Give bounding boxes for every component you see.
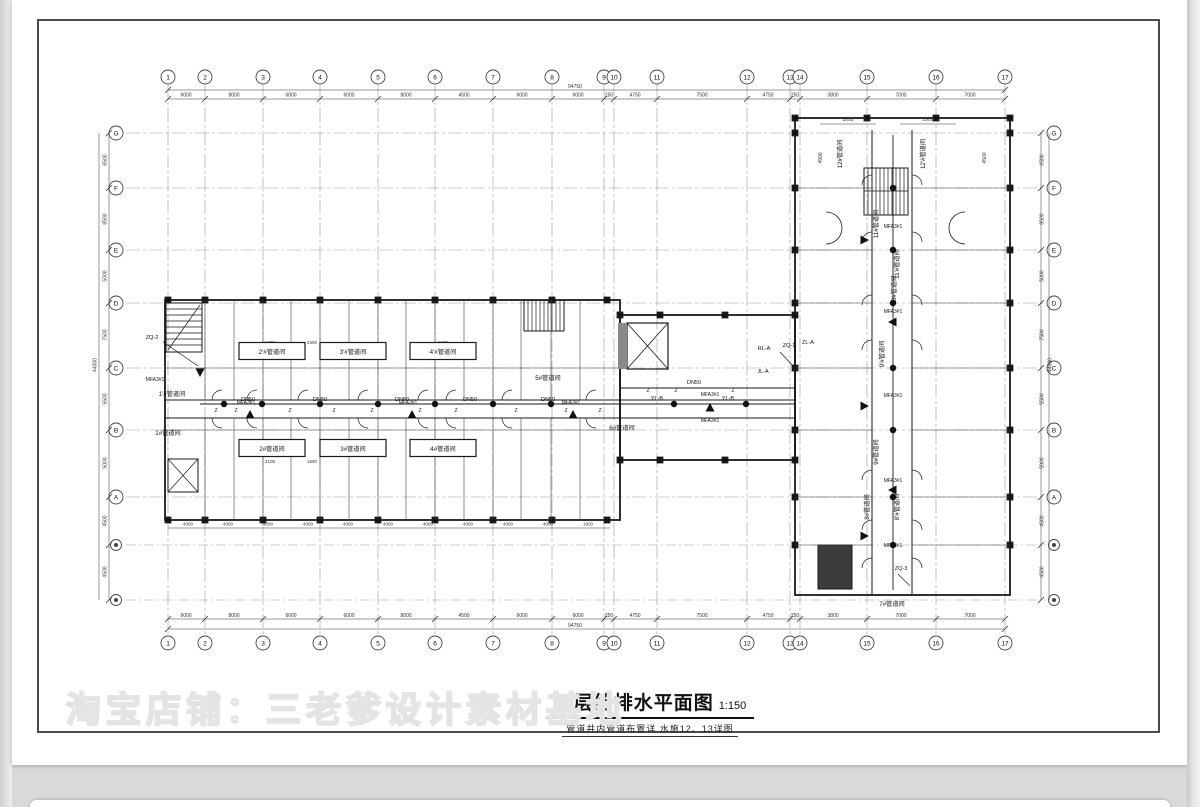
dimension-text: 4000 <box>503 522 514 527</box>
dimension-text: 8000 <box>228 93 239 99</box>
axis-bubble-number: 5 <box>376 74 380 81</box>
dimension-text: 8500 <box>1040 213 1046 224</box>
riser-triangle <box>888 486 897 495</box>
axis-bubble-number: 10 <box>610 640 618 647</box>
axis-bubble-number: 14 <box>796 74 804 81</box>
riser-mark: Z <box>731 388 734 394</box>
dimension-text: 250 <box>605 613 614 619</box>
equipment-label: MFA3#1 <box>701 418 720 424</box>
zone-label: ZQ-3 <box>895 566 908 572</box>
axis-bubble-letter: G <box>1051 130 1056 137</box>
drawing-title: 三层给排水平面图 <box>554 692 714 714</box>
dimension-text: 6500 <box>103 154 109 165</box>
dimension-text: 6000 <box>180 93 191 99</box>
pipe-size-label: DN50 <box>463 397 477 403</box>
dimension-text: 7000 <box>964 613 975 619</box>
dimension-text: 4750 <box>762 93 773 99</box>
dimension-text: 8000 <box>400 93 411 99</box>
zone-label: JL-A <box>757 369 769 375</box>
equipment-label: MFA3#1 <box>884 309 903 315</box>
room-label: 2'#管道间 <box>259 348 286 356</box>
dimension-text: 7000 <box>895 613 906 619</box>
dimension-text: 6000 <box>516 613 527 619</box>
next-page-preview <box>30 800 1170 807</box>
riser-mark: Z <box>332 408 335 414</box>
riser-mark: Z <box>646 388 649 394</box>
dimension-text: 4000 <box>183 522 194 527</box>
axis-bubble-number: 12 <box>743 640 751 647</box>
room-label: 9'#管道间 <box>878 341 886 368</box>
room-label: 2#管道间 <box>259 445 284 453</box>
dimension-text: 4000 <box>423 522 434 527</box>
riser-mark: Z <box>598 408 601 414</box>
room-label: 3'#管道间 <box>340 348 367 356</box>
dimension-text: 4000 <box>223 522 234 527</box>
dimension-text: 3800 <box>827 93 838 99</box>
axis-bubble-number: 8 <box>550 640 554 647</box>
riser-mark: Z <box>234 408 237 414</box>
dimension-text: 7500 <box>696 93 707 99</box>
riser-mark: Z <box>418 408 421 414</box>
axis-bubble-number: 15 <box>863 74 871 81</box>
room-label: 12'#管道间 <box>919 139 927 169</box>
axis-bubble-letter: E <box>1052 247 1057 254</box>
dimension-text: 4000 <box>343 522 354 527</box>
dimension-text: 8500 <box>103 213 109 224</box>
room-label: 11#管道间 <box>872 210 880 238</box>
dimension-text: 7000 <box>964 93 975 99</box>
riser-triangle <box>246 410 255 419</box>
axis-bubble-number: 16 <box>932 640 940 647</box>
axis-bubble-number: 1 <box>166 74 170 81</box>
riser-triangle <box>569 410 578 419</box>
riser-mark: Z <box>214 408 217 414</box>
axis-bubble-number: 9 <box>602 640 606 647</box>
dimension-text: 5500 <box>103 393 109 404</box>
pipe-size-label: DN50 <box>687 380 701 386</box>
axis-bubble-letter: A <box>114 494 119 501</box>
axis-bubble-number: 10 <box>610 74 618 81</box>
dimension-text: 6000 <box>343 93 354 99</box>
zone-label: ZQ-1 <box>783 343 796 349</box>
dimension-text: 2900 <box>922 117 933 123</box>
riser-triangle <box>408 410 417 419</box>
title-block: 三层给排水平面图1:150 管道井内管道布置详 水施12、13详图 <box>520 688 780 737</box>
dimension-text: 7500 <box>1040 329 1046 340</box>
axis-bubble-number: 9 <box>602 74 606 81</box>
equipment-label: MFA3#1 <box>399 400 418 406</box>
dimension-text: 250 <box>605 93 614 99</box>
axis-bubble-number: 8 <box>550 74 554 81</box>
axis-bubble-letter: G <box>113 130 118 137</box>
dimension-text: 5000 <box>1040 270 1046 281</box>
dimension-text: 4750 <box>629 613 640 619</box>
equipment-label: MFA3#1 <box>884 478 903 484</box>
dimension-text: 7500 <box>696 613 707 619</box>
riser-triangle <box>861 532 870 541</box>
drawing-scale: 1:150 <box>719 700 747 712</box>
riser-triangle <box>861 402 870 411</box>
zone-label: YL-B <box>651 396 664 402</box>
room-label: 11'#管道间 <box>893 249 901 279</box>
room-label: 6#管道间 <box>609 424 634 432</box>
room-label: 8#管道间 <box>863 494 871 519</box>
dimension-text: 7500 <box>103 329 109 340</box>
dimension-text: 6000 <box>285 613 296 619</box>
axis-bubble-number: 12 <box>743 74 751 81</box>
dimension-text: 4500 <box>1040 515 1046 526</box>
dimension-text: 3000 <box>842 117 853 123</box>
zone-label: RL-A <box>758 346 771 352</box>
overall-dimension: 94750 <box>568 84 582 90</box>
axis-bubble-number: 5 <box>376 640 380 647</box>
equipment-label: MFA3#1 <box>237 400 256 406</box>
dimension-text: 5000 <box>1040 457 1046 468</box>
room-label: 4'#管道间 <box>430 348 457 356</box>
riser-mark: Z <box>674 388 677 394</box>
axis-bubble-number: 7 <box>491 74 495 81</box>
axis-bubble-number: 15 <box>863 640 871 647</box>
dimension-text: 1500 <box>307 459 318 464</box>
axis-bubble-number: 16 <box>932 74 940 81</box>
room-label: 12#管道间 <box>836 140 844 169</box>
riser-mark: Z <box>288 408 291 414</box>
axis-bubble-letter: E <box>114 247 119 254</box>
dimension-text: 6000 <box>180 613 191 619</box>
axis-bubble-number: 2 <box>203 640 207 647</box>
dimension-text: 8000 <box>228 613 239 619</box>
dimension-text: 1900 <box>583 522 594 527</box>
axis-bubble-number: 6 <box>433 640 437 647</box>
axis-bubble-number: 4 <box>318 74 322 81</box>
axis-bubble-number: 2 <box>203 74 207 81</box>
dimension-text: 4500 <box>103 515 109 526</box>
floor-plan-canvas: 1122334455667788991010111112121313141415… <box>0 0 1200 807</box>
axis-bubble-letter: B <box>1052 427 1056 434</box>
annotations: 1122334455667788991010111112121313141415… <box>93 70 1062 650</box>
dimension-text: 6500 <box>1040 154 1046 165</box>
axis-bubble-number: 6 <box>433 74 437 81</box>
room-label: 7#管道间 <box>879 600 904 608</box>
zone-label: ZL-A <box>802 340 814 346</box>
axis-bubble-number: 3 <box>261 640 265 647</box>
riser-triangle <box>196 369 205 378</box>
overall-dimension: 94750 <box>568 623 582 629</box>
equipment-label: MFA3#1 <box>146 377 165 383</box>
equipment-label: MFA3#1 <box>884 393 903 399</box>
dimension-text: 6000 <box>343 613 354 619</box>
axis-bubble-number: 11 <box>654 640 661 647</box>
riser-triangle <box>861 236 870 245</box>
axis-bubble-number: 3 <box>261 74 265 81</box>
overall-dimension: 44000 <box>93 358 99 372</box>
axis-bubble-number: 17 <box>1001 74 1009 81</box>
riser-mark: Z <box>564 408 567 414</box>
axis-bubble-number: 14 <box>796 640 804 647</box>
dimension-text: 4500 <box>1040 566 1046 577</box>
riser-mark: Z <box>370 408 373 414</box>
riser-mark: Z <box>514 408 517 414</box>
right-scrollbar[interactable] <box>1187 0 1200 807</box>
axis-bubble-letter: D <box>1052 300 1057 307</box>
dimension-text: 6000 <box>572 613 583 619</box>
dimension-text: 4000 <box>543 522 554 527</box>
zone-label: ZQ-2 <box>146 335 159 341</box>
dimension-text: 4500 <box>458 613 469 619</box>
dimension-text: 5500 <box>1040 393 1046 404</box>
axis-bubble-letter: F <box>1052 185 1056 192</box>
room-label: 1#管道间 <box>155 429 180 437</box>
dimension-text: 250 <box>791 613 800 619</box>
dimension-text: 5000 <box>103 270 109 281</box>
dimension-text: 8000 <box>400 613 411 619</box>
dimension-text: 4500 <box>458 93 469 99</box>
dimension-text: 4500 <box>103 566 109 577</box>
axis-bubble-number: 11 <box>654 74 661 81</box>
dimension-text: 4500 <box>982 152 988 163</box>
axis-bubble-number: 4 <box>318 640 322 647</box>
overall-dimension: 44000 <box>1048 358 1054 372</box>
dimension-text: 2400 <box>307 340 318 345</box>
room-label: 3#管道间 <box>340 445 365 453</box>
dimension-text: 2100 <box>265 459 276 464</box>
dimension-text: 5000 <box>103 457 109 468</box>
axis-bubble-number: 17 <box>1001 640 1009 647</box>
riser-triangle <box>888 318 897 327</box>
dimension-text: 6000 <box>285 93 296 99</box>
room-label: 4#管道间 <box>430 445 455 453</box>
equipment-label: MFA3#1 <box>884 224 903 230</box>
equipment-label: MFA3#1 <box>701 392 720 398</box>
axis-bubble-letter: C <box>114 365 119 372</box>
room-label: 1'#管道间 <box>159 390 186 398</box>
axis-bubble-letter: F <box>114 185 118 192</box>
axis-bubble-letter: D <box>114 300 119 307</box>
riser-mark: Z <box>454 408 457 414</box>
dimension-text: 4750 <box>762 613 773 619</box>
room-label: 9#管道间 <box>872 439 880 464</box>
dimension-text: 3800 <box>827 613 838 619</box>
dimension-text: 4500 <box>818 152 824 163</box>
dimension-text: 4750 <box>629 93 640 99</box>
dimension-text: 4000 <box>463 522 474 527</box>
axis-bubble-number: 7 <box>491 640 495 647</box>
axis-bubble-letter: A <box>1052 494 1057 501</box>
dimension-text: 6000 <box>516 93 527 99</box>
equipment-label: MFA3#1 <box>562 400 581 406</box>
dimension-text: 4000 <box>303 522 314 527</box>
zone-label: YL-B <box>722 396 735 402</box>
dimension-text: 4000 <box>383 522 394 527</box>
dimension-text: 4000 <box>263 522 274 527</box>
dimension-text: 250 <box>791 93 800 99</box>
room-label: 5#管道间 <box>535 374 560 382</box>
drawing-subtitle: 管道井内管道布置详 水施12、13详图 <box>562 722 738 737</box>
dimension-text: 7000 <box>895 93 906 99</box>
axis-bubble-letter: B <box>114 427 118 434</box>
dimension-text: 6000 <box>572 93 583 99</box>
axis-bubble-number: 1 <box>166 640 170 647</box>
